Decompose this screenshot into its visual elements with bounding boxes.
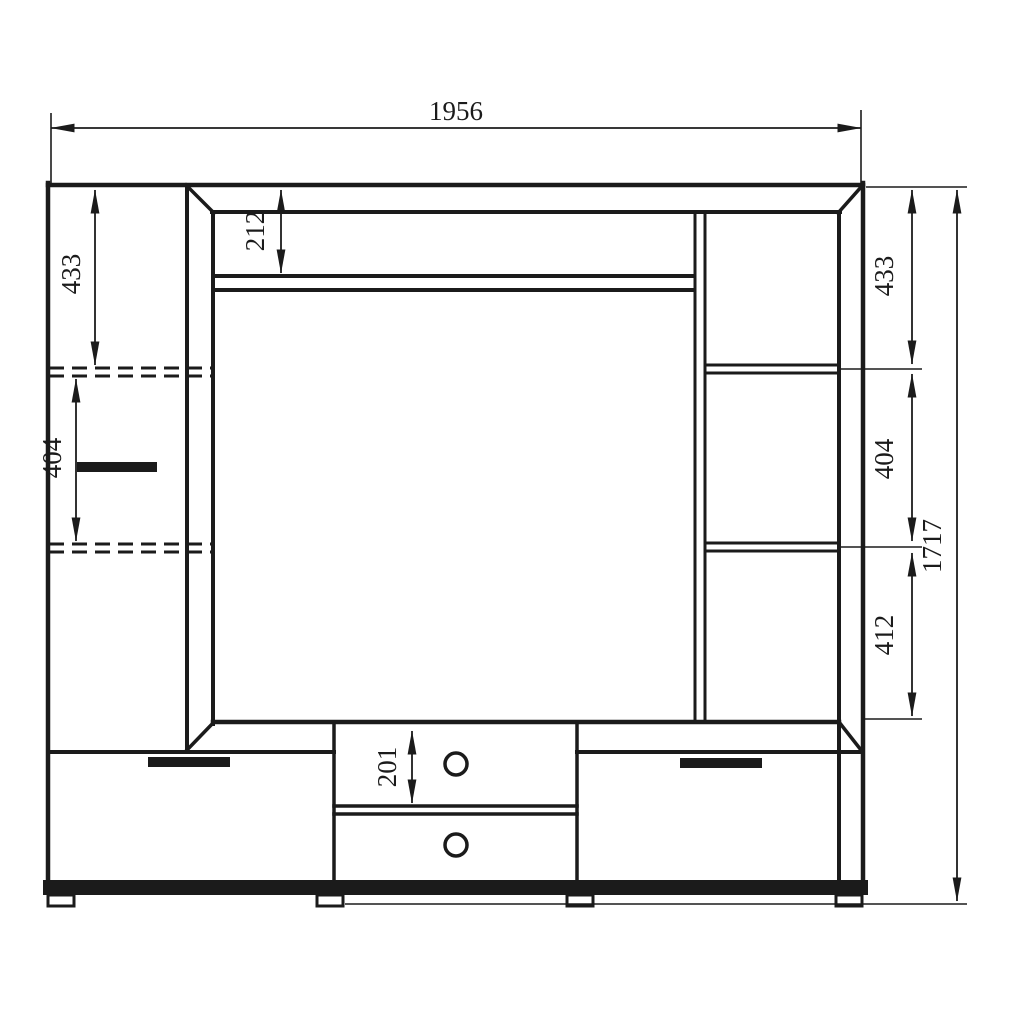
dimension-top-niche-212: 212 [240,190,281,273]
dimension-right-433: 433 [869,190,912,364]
drawing-canvas: 1956 1717 433 404 212 433 404 412 201 [0,0,1024,1024]
dimension-left-404: 404 [37,379,76,541]
dimension-left-433: 433 [56,190,95,365]
left-base-handle [148,757,230,767]
plinth-and-feet [43,880,868,906]
right-base-handle [680,758,762,768]
left-door-handle [77,462,157,472]
bottom-drawer-knob [445,834,467,856]
dim-label-overall-width: 1956 [429,96,483,126]
dim-label-left-433: 433 [56,254,86,295]
foot [317,895,343,906]
dim-label-drawer: 201 [372,747,402,788]
outer-frame [48,183,863,882]
furniture-dimension-diagram: 1956 1717 433 404 212 433 404 412 201 [0,0,1024,1024]
dimension-overall-width: 1956 [51,96,861,183]
foot [48,895,74,906]
dim-label-right-404: 404 [869,438,899,479]
dimension-right-404: 404 [841,369,922,541]
top-drawer-knob [445,753,467,775]
bottom-right-bevel [839,722,861,750]
bottom-left-bevel [187,722,214,750]
dim-label-left-404: 404 [37,437,67,478]
dimension-right-412: 412 [841,547,922,719]
top-left-bevel [186,185,214,213]
dim-label-right-433: 433 [869,256,899,297]
dim-label-top-niche: 212 [240,211,270,252]
dim-label-right-412: 412 [869,615,899,656]
plinth [43,880,868,895]
top-right-bevel [838,186,862,213]
dim-label-overall-height: 1717 [917,519,947,573]
dimension-drawer-201: 201 [372,731,412,803]
right-shelf-column [695,212,838,720]
base-cabinets [48,724,862,880]
top-shelf [213,276,694,290]
